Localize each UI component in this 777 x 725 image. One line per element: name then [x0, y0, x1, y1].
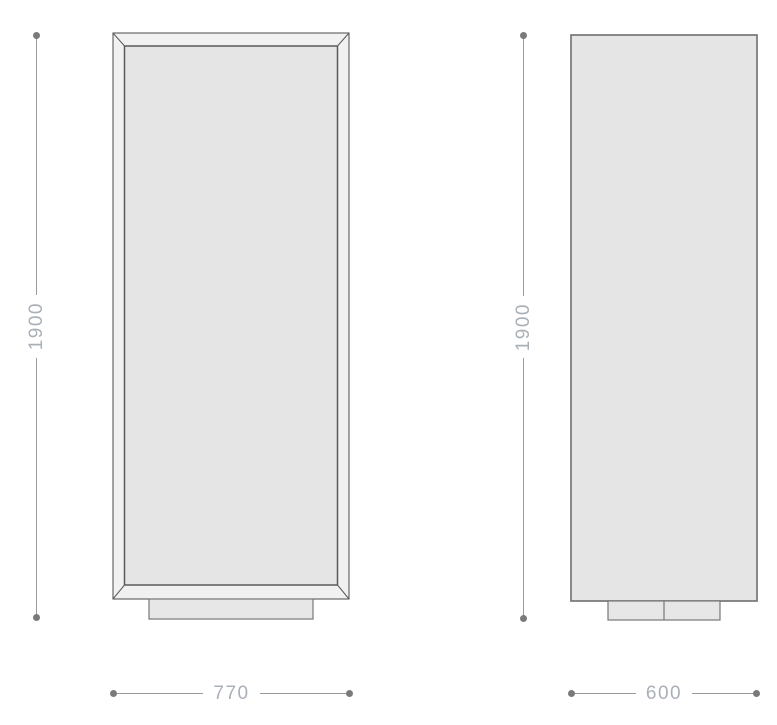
dimension-line-segment [36, 35, 37, 295]
dimension-line-segment [571, 693, 636, 694]
dimension-line-segment [523, 35, 524, 296]
cabinet-side-view [571, 35, 757, 620]
dimension-endpoint-dot [753, 690, 760, 697]
cabinet-drawing [0, 0, 777, 725]
front-width-label: 770 [213, 684, 249, 703]
dimension-line-segment [260, 693, 350, 694]
dimension-endpoint-dot [520, 32, 527, 39]
technical-drawing-canvas: 1900 1900 770 600 [0, 0, 777, 725]
dimension-endpoint-dot [346, 690, 353, 697]
dimension-endpoint-dot [33, 32, 40, 39]
dimension-line-segment [113, 693, 203, 694]
dimension-endpoint-dot [568, 690, 575, 697]
dimension-line-segment [692, 693, 757, 694]
front-plinth [149, 599, 313, 619]
front-height-label: 1900 [27, 302, 46, 350]
dimension-endpoint-dot [110, 690, 117, 697]
side-width-dimension: 600 [571, 686, 757, 700]
side-width-label: 600 [646, 684, 682, 703]
dimension-line-segment [36, 358, 37, 618]
side-body [571, 35, 757, 601]
dimension-endpoint-dot [33, 614, 40, 621]
front-width-dimension: 770 [113, 686, 350, 700]
front-height-dimension: 1900 [29, 35, 43, 618]
dimension-endpoint-dot [520, 615, 527, 622]
side-height-label: 1900 [514, 303, 533, 351]
front-door-panel [125, 46, 338, 585]
dimension-line-segment [523, 358, 524, 619]
side-height-dimension: 1900 [516, 35, 530, 619]
cabinet-front-view [113, 33, 349, 619]
